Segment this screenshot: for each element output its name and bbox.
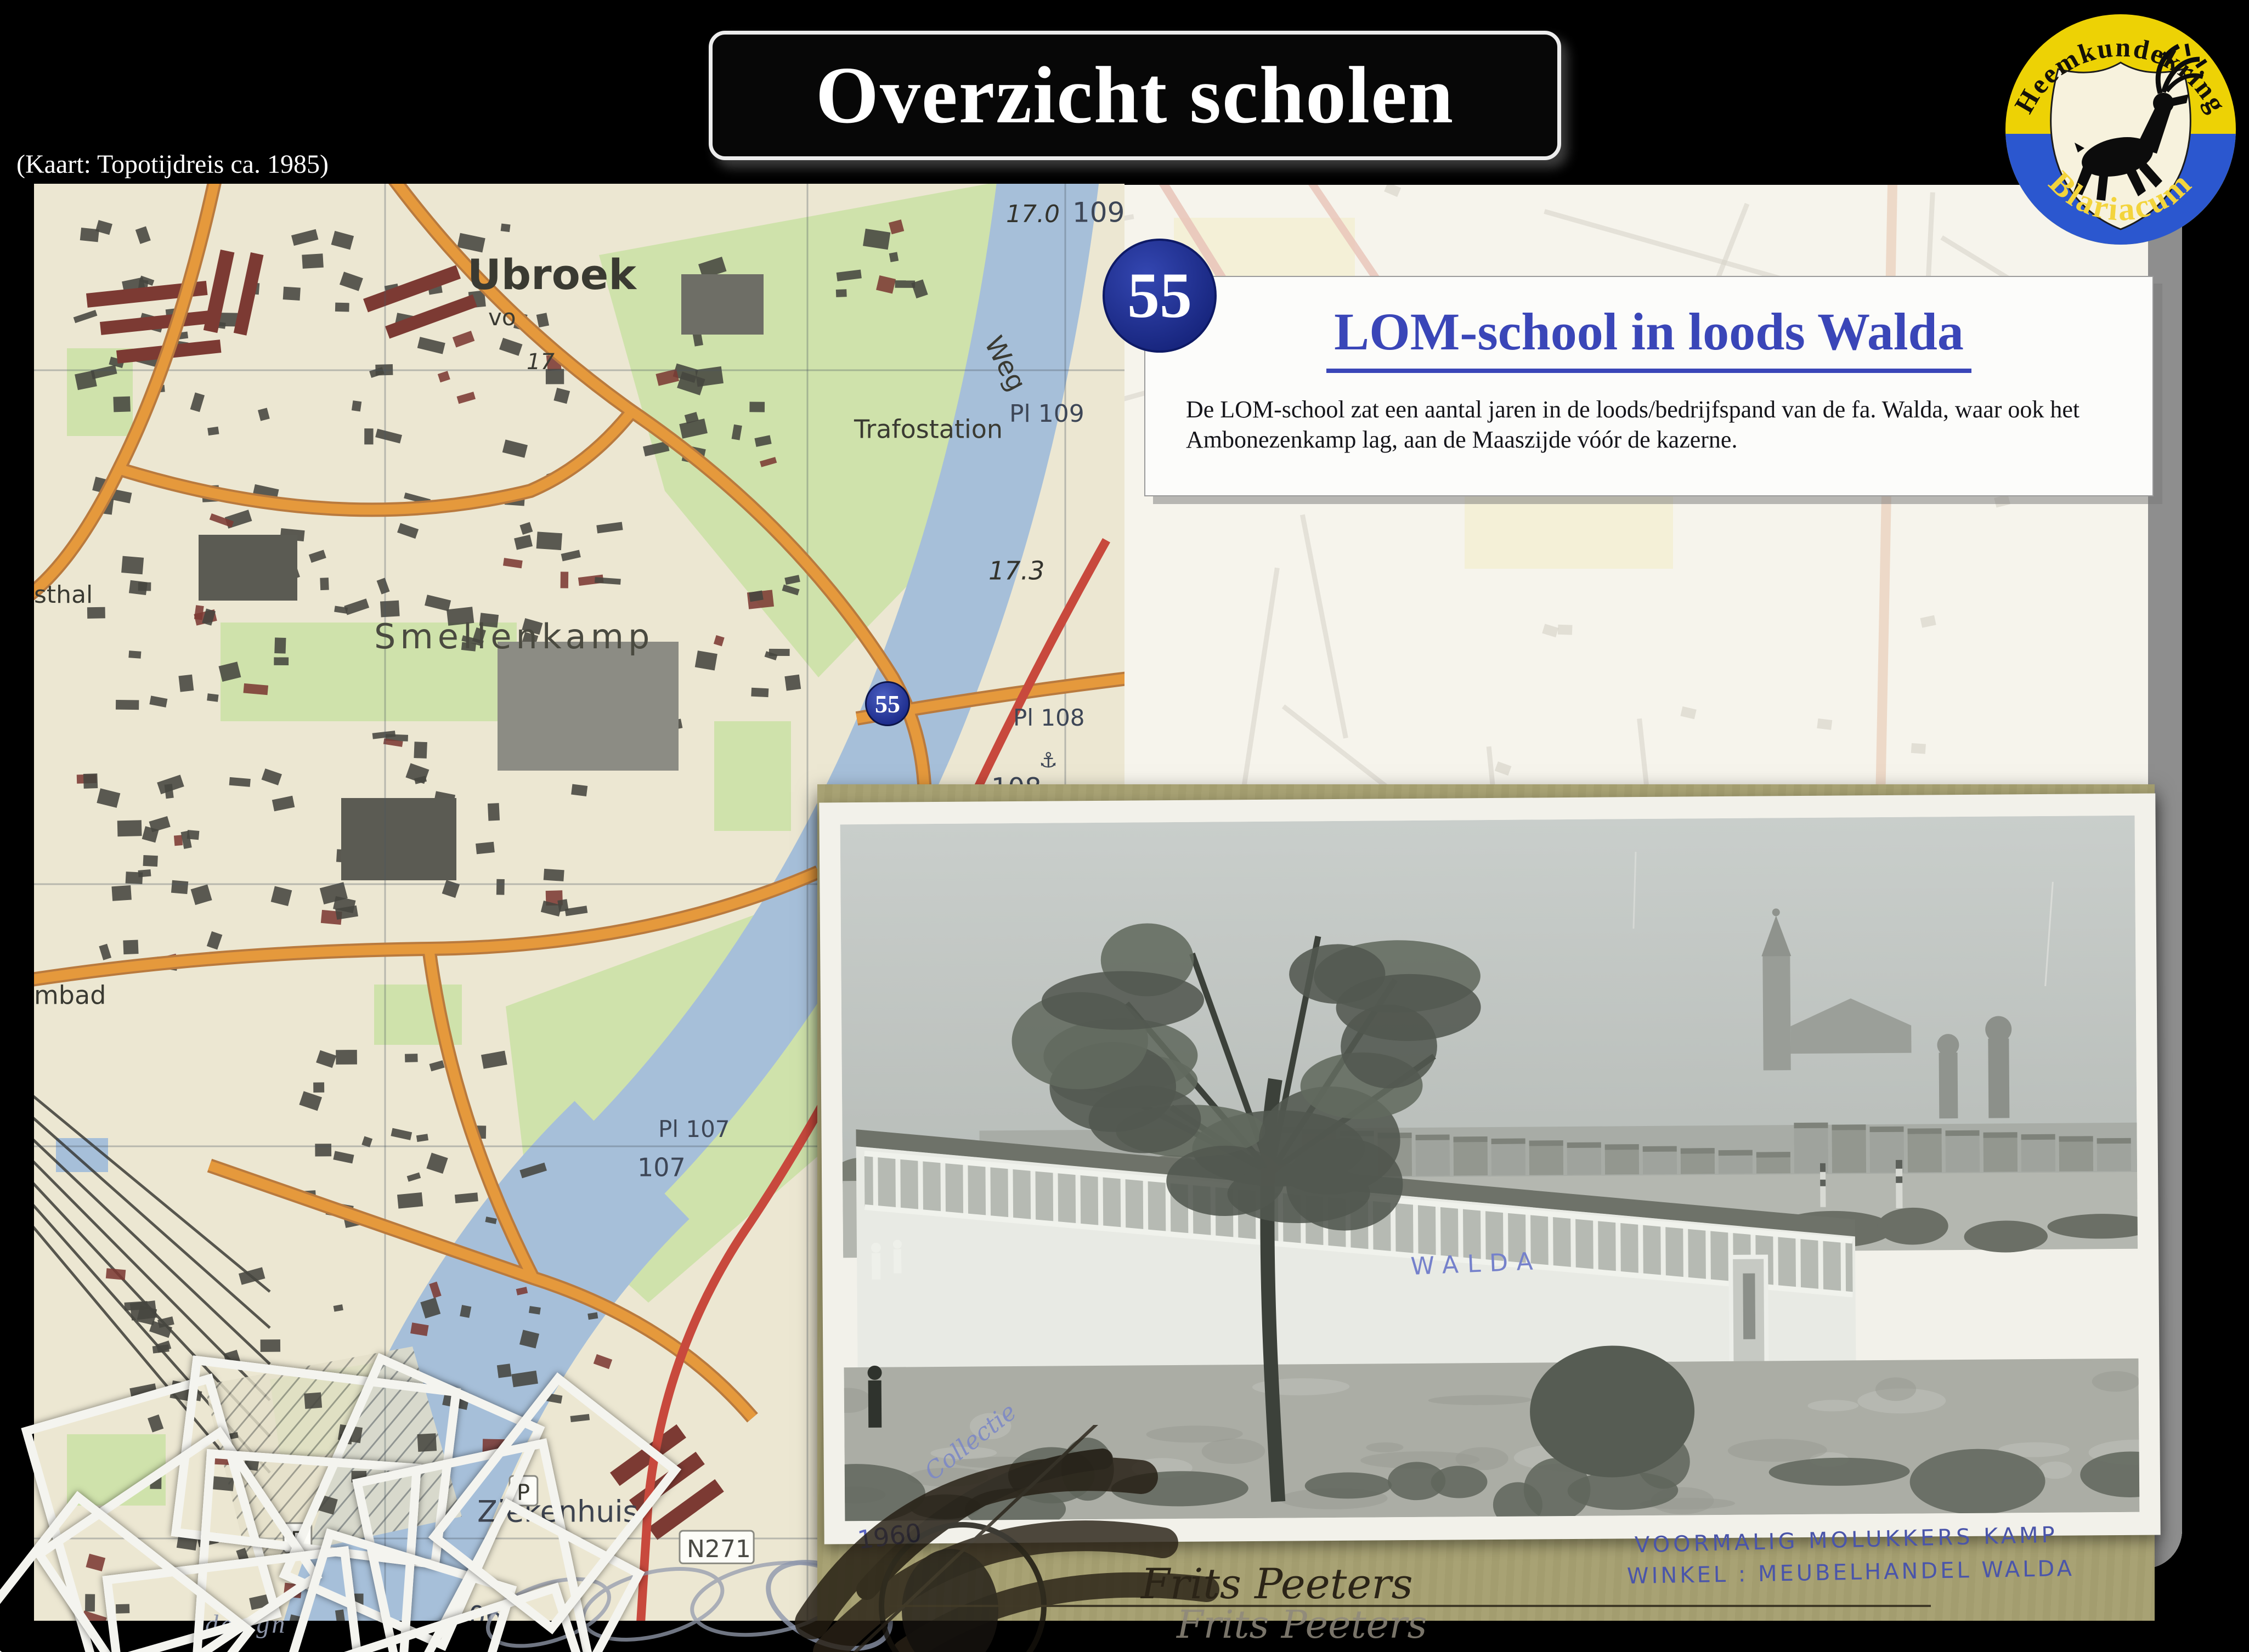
map-label: mbad [34, 981, 106, 1010]
heemkundekring-logo: Heemkundekring Blariacum [2001, 10, 2240, 249]
map-label: Pl 108 [1013, 704, 1085, 731]
presentation-slide: Ubroekvo1717.0109WegPl 109Trafostation17… [0, 0, 2249, 1652]
card-body-text: De LOM-school zat een aantal jaren in de… [1186, 395, 2114, 455]
card-number-badge: 55 [1103, 239, 1217, 353]
photo-wall-text: WALDA [1410, 1247, 1542, 1281]
map-marker-55: 55 [865, 681, 910, 726]
map-label: 17 [527, 349, 555, 375]
map-label: Smellenkamp [374, 616, 654, 657]
map-label: Ubroek [467, 250, 637, 299]
photo-scene-svg: WALDA [840, 816, 2140, 1521]
map-label: 17.0 [1006, 200, 1060, 228]
map-label: vo [488, 304, 516, 331]
map-label: sthal [34, 581, 93, 609]
map-label: ⚓ [1039, 748, 1058, 772]
slide-title: Overzicht scholen [816, 49, 1454, 142]
slide-title-box: Overzicht scholen [709, 31, 1561, 160]
frits-peeters-logo: Frits Peeters Frits Peeters [790, 1425, 1942, 1652]
map-label: 109 [1072, 197, 1124, 229]
card-title-text: LOM-school in loods Walda [1326, 301, 1971, 373]
info-card: LOM-school in loods Walda De LOM-school … [1144, 276, 2154, 496]
signature-shadow-text: Frits Peeters [1176, 1602, 1427, 1647]
signature-text: Frits Peeters [1140, 1559, 1413, 1608]
map-label: 107 [637, 1153, 686, 1183]
map-label: 17.3 [988, 556, 1044, 586]
map-source-caption: (Kaart: Topotijdreis ca. 1985) [16, 149, 329, 179]
map-label: Pl 107 [658, 1116, 730, 1142]
map-label: Trafostation [854, 415, 1003, 444]
map-label: Pl 109 [1009, 400, 1084, 428]
card-title: LOM-school in loods Walda [1145, 301, 2152, 373]
